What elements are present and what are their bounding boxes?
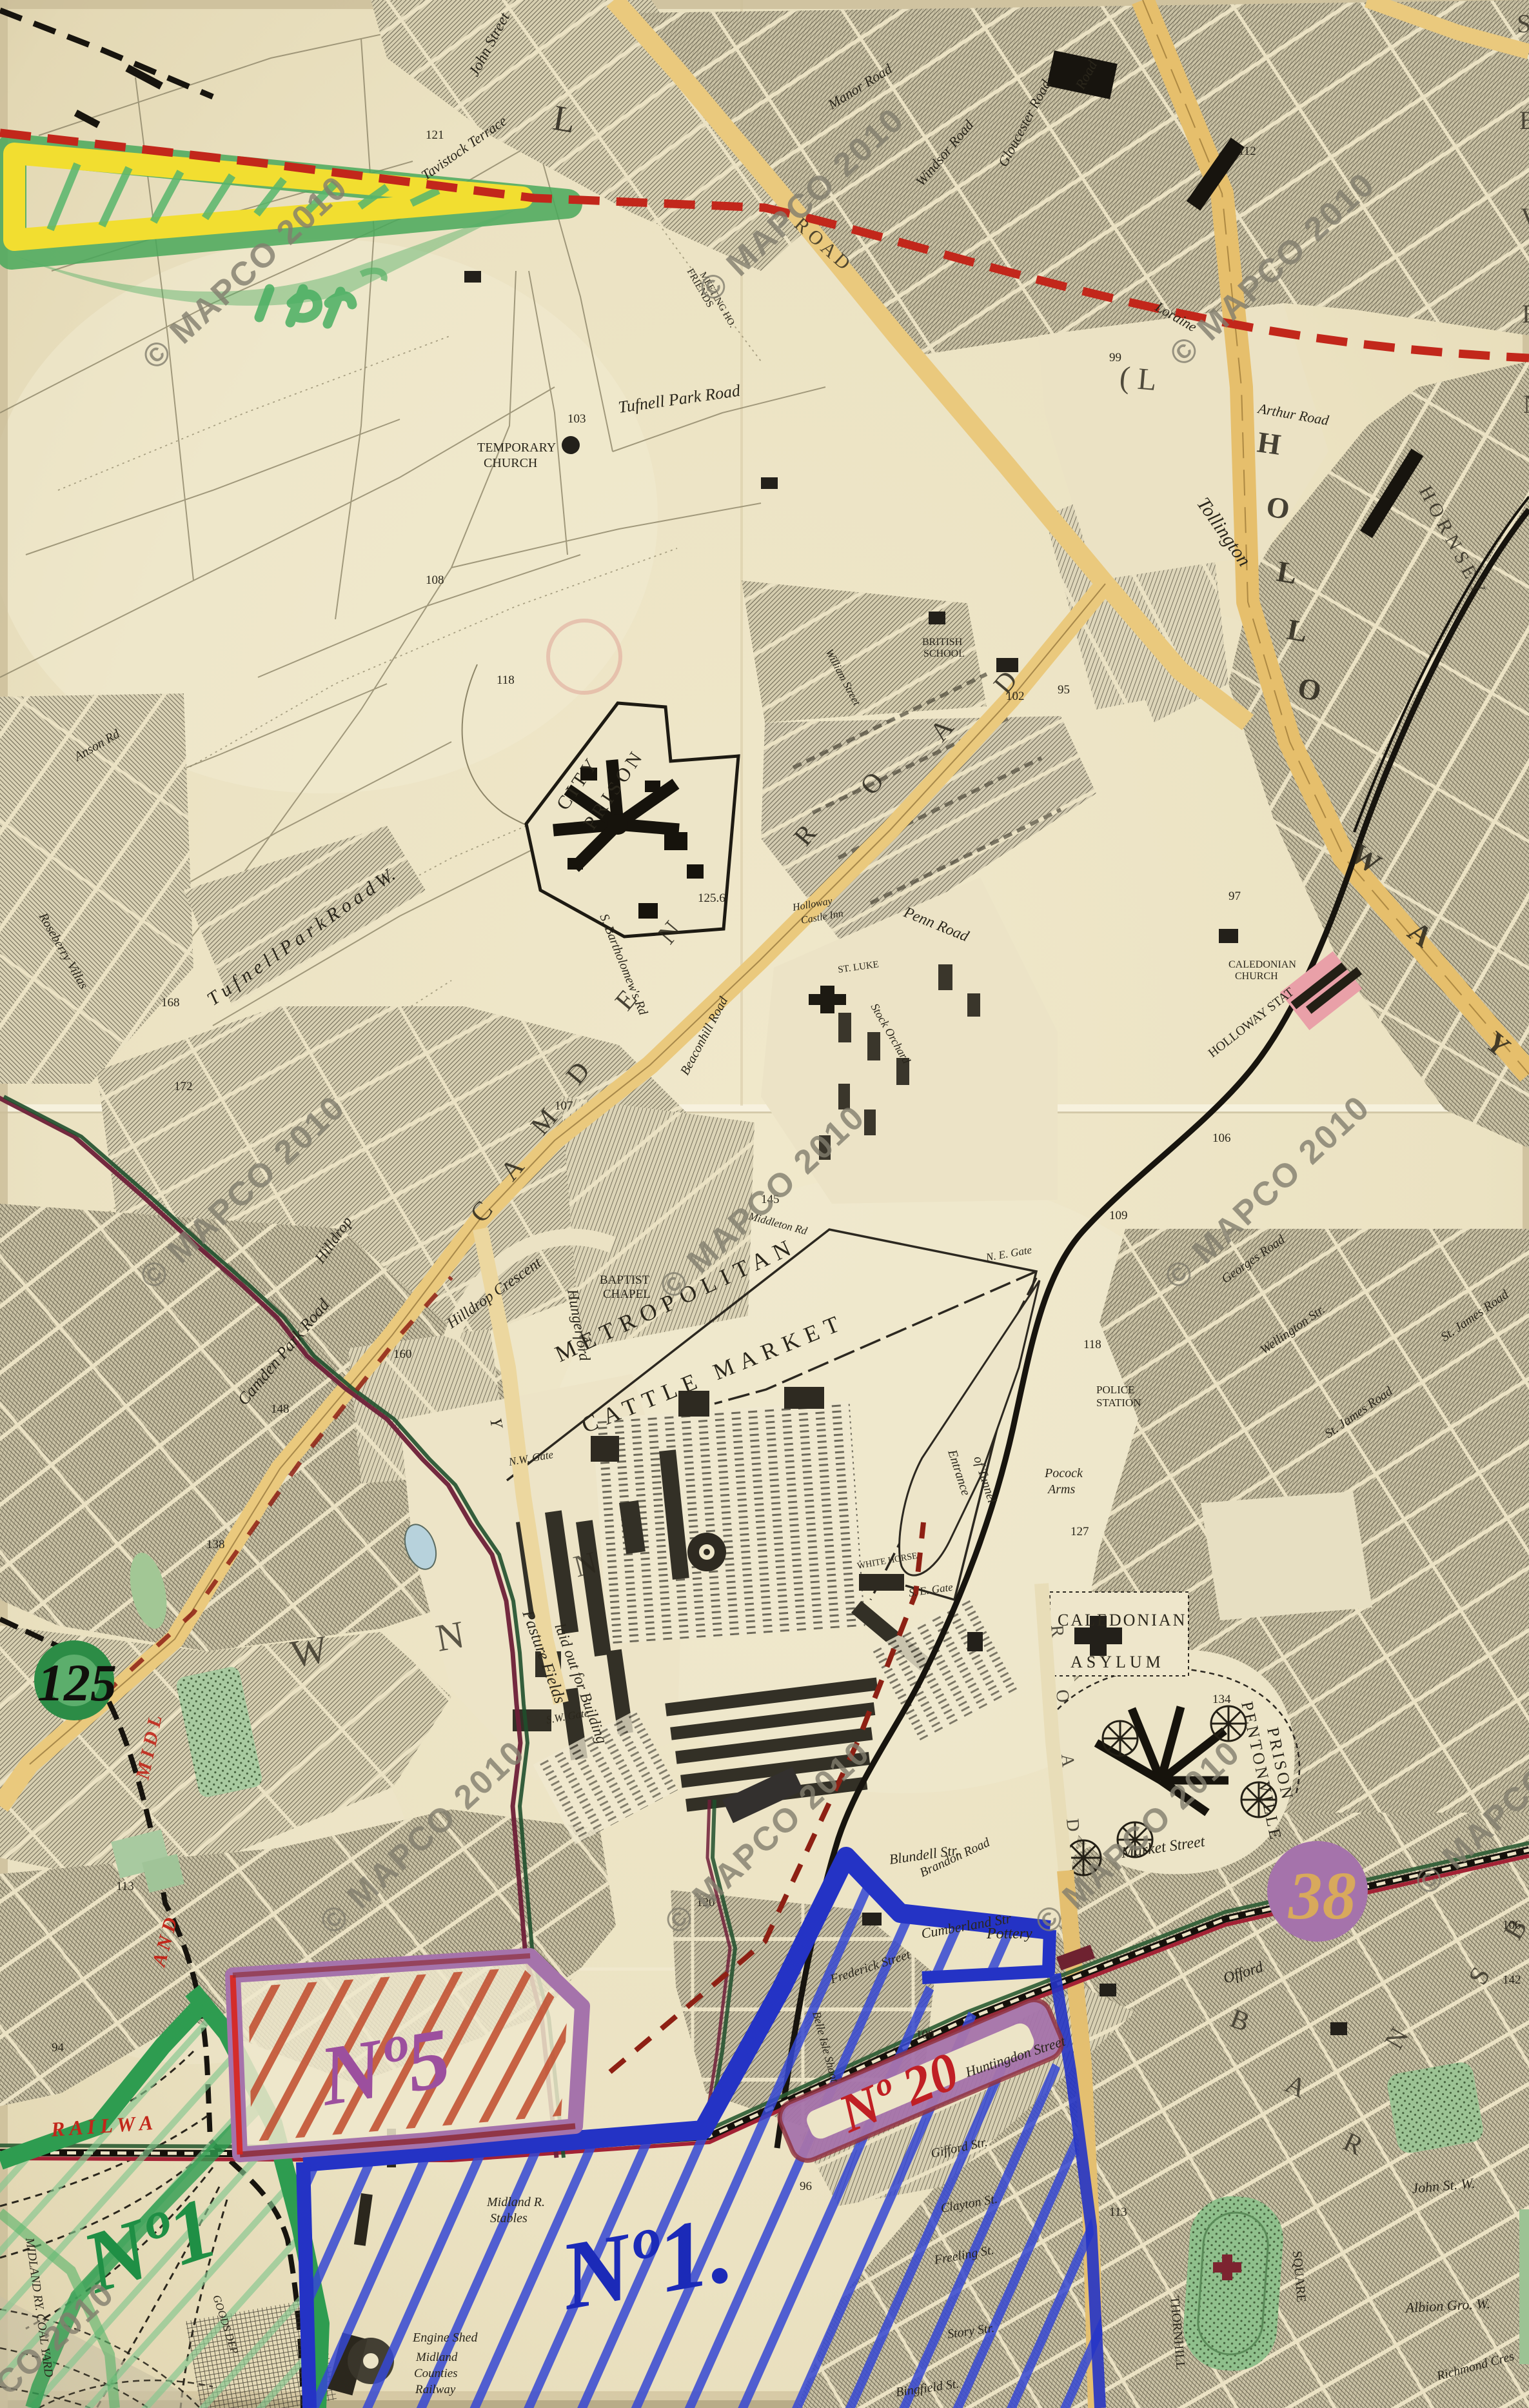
svg-text:R: R (1047, 1624, 1068, 1638)
svg-text:Nº5: Nº5 (312, 2010, 456, 2124)
svg-text:99: 99 (1109, 351, 1121, 364)
svg-text:121: 121 (426, 128, 444, 142)
svg-text:S: S (1517, 9, 1529, 38)
svg-text:ASYLUM: ASYLUM (1070, 1653, 1165, 1671)
svg-text:O: O (1052, 1689, 1073, 1704)
svg-text:118: 118 (1083, 1338, 1101, 1351)
svg-text:109: 109 (1109, 1209, 1128, 1222)
svg-text:127: 127 (1070, 1525, 1089, 1538)
svg-text:CHURCH: CHURCH (484, 456, 537, 470)
svg-text:106: 106 (1503, 1918, 1521, 1932)
svg-text:Pocock: Pocock (1044, 1466, 1083, 1480)
svg-text:103: 103 (567, 412, 586, 426)
svg-text:CALEDONIAN: CALEDONIAN (1058, 1611, 1187, 1629)
svg-text:160: 160 (393, 1348, 412, 1361)
svg-text:94: 94 (52, 2041, 64, 2055)
svg-text:108: 108 (426, 573, 444, 587)
svg-text:118: 118 (497, 673, 515, 687)
svg-text:134: 134 (1212, 1693, 1231, 1706)
svg-text:Pottery: Pottery (986, 1925, 1032, 1942)
svg-text:148: 148 (271, 1402, 290, 1416)
svg-text:CHAPEL: CHAPEL (603, 1288, 651, 1301)
svg-text:112: 112 (1238, 144, 1256, 158)
svg-text:SCHOOL: SCHOOL (923, 648, 965, 659)
svg-text:BAPTIST: BAPTIST (600, 1273, 649, 1287)
svg-text:100: 100 (916, 2028, 934, 2042)
svg-text:V: V (1521, 203, 1529, 232)
svg-text:BRITISH: BRITISH (922, 637, 963, 648)
svg-text:172: 172 (174, 1080, 193, 1093)
svg-text:142: 142 (1503, 1973, 1521, 1987)
svg-text:96: 96 (800, 2180, 812, 2193)
svg-text:Counties: Counties (414, 2367, 458, 2380)
svg-text:N: N (1523, 390, 1529, 419)
svg-text:H: H (1256, 425, 1283, 461)
svg-text:Engine Shed: Engine Shed (412, 2331, 478, 2345)
svg-text:Midland: Midland (415, 2351, 458, 2364)
svg-text:POLICE: POLICE (1096, 1384, 1135, 1396)
svg-text:125.6: 125.6 (698, 891, 725, 905)
svg-text:( L: ( L (1118, 360, 1158, 397)
svg-text:125: 125 (37, 1653, 117, 1712)
svg-text:Midland R.: Midland R. (486, 2195, 545, 2209)
svg-text:A: A (1057, 1753, 1078, 1769)
svg-text:38: 38 (1288, 1858, 1356, 1933)
svg-text:Arms: Arms (1047, 1482, 1075, 1497)
svg-text:CHURCH: CHURCH (1235, 971, 1278, 982)
svg-text:97: 97 (1228, 890, 1241, 903)
svg-text:STATION: STATION (1096, 1397, 1141, 1409)
svg-text:E: E (1519, 106, 1529, 135)
svg-text:107: 107 (555, 1099, 573, 1113)
svg-text:D: D (1062, 1818, 1083, 1833)
svg-text:95: 95 (1058, 683, 1070, 697)
svg-text:106: 106 (1212, 1131, 1231, 1145)
svg-text:O: O (1265, 490, 1292, 525)
svg-text:CALEDONIAN: CALEDONIAN (1228, 959, 1296, 970)
svg-text:W: W (288, 1627, 331, 1676)
svg-text:138: 138 (206, 1538, 225, 1551)
svg-text:Stables: Stables (490, 2211, 528, 2225)
svg-text:Railway: Railway (415, 2383, 456, 2396)
svg-text:168: 168 (161, 996, 180, 1010)
svg-text:102: 102 (1006, 690, 1025, 703)
svg-text:113: 113 (116, 1880, 134, 1893)
svg-text:TEMPORARY: TEMPORARY (477, 441, 556, 455)
svg-text:113: 113 (1109, 2205, 1127, 2219)
svg-text:E: E (1522, 299, 1529, 328)
